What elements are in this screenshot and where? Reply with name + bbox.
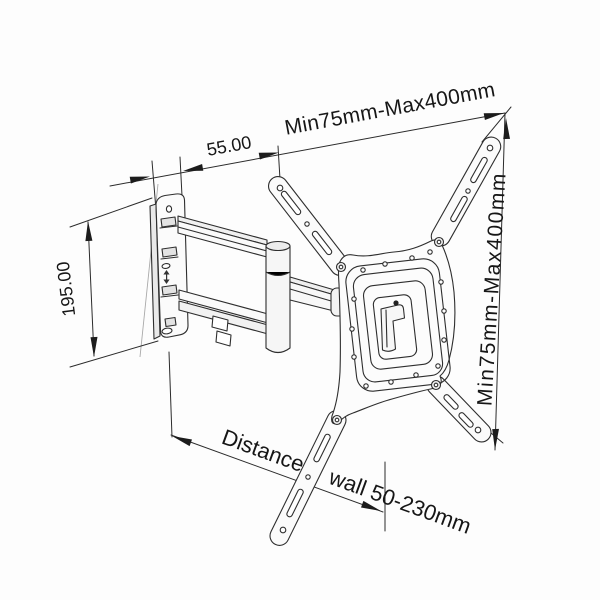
center-opening	[373, 294, 418, 360]
mount-hole	[166, 206, 171, 212]
upper-arm-link	[178, 216, 267, 257]
pivot-bolt	[161, 217, 176, 227]
cable-clip	[216, 331, 231, 346]
pivot-column	[266, 242, 290, 353]
wall-plate	[150, 194, 188, 339]
technical-drawing-page: Min75mm-Max400mm 55.00 195.00 Min75mm-Ma…	[0, 0, 600, 600]
lock-dot	[393, 300, 398, 305]
lower-arm-link	[179, 290, 268, 346]
pivot-bolt	[162, 285, 177, 295]
pivot-bolt	[162, 247, 177, 257]
wall-mount-technical-drawing	[0, 0, 600, 600]
dim-line-left	[88, 222, 94, 356]
